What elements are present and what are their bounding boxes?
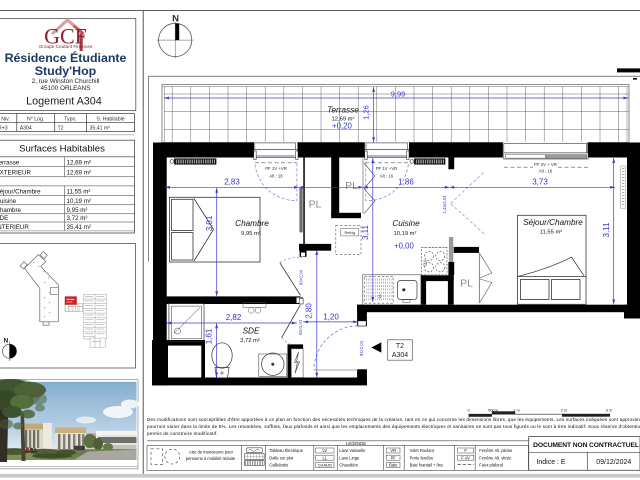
svg-text:personne à mobilité réduite: personne à mobilité réduite (186, 456, 236, 461)
svg-text:Fenêtre Alt. pleine: Fenêtre Alt. pleine (479, 448, 513, 453)
svg-text:Terrasse: Terrasse (327, 105, 359, 114)
svg-text:Groupe Coutant Finances: Groupe Coutant Finances (39, 44, 93, 49)
svg-text:PL: PL (309, 199, 322, 211)
svg-text:PF 1V +VR: PF 1V +VR (265, 166, 287, 171)
svg-text:+0,20: +0,20 (332, 122, 352, 131)
svg-text:Fenêtre Alt. vitrée: Fenêtre Alt. vitrée (479, 455, 512, 460)
svg-text:Baie fvantail + fixe: Baie fvantail + fixe (410, 463, 444, 468)
svg-text:Alt : 16: Alt : 16 (539, 169, 553, 174)
svg-text:2 m: 2 m (561, 408, 568, 413)
svg-text:PF 1V +VR: PF 1V +VR (376, 166, 398, 171)
svg-text:Chambre: Chambre (235, 219, 269, 228)
svg-text:45100 ORLEANS: 45100 ORLEANS (40, 85, 90, 92)
svg-text:Niv.: Niv. (1, 117, 10, 123)
svg-text:3,11: 3,11 (361, 224, 370, 240)
svg-text:Caillebotis: Caillebotis (269, 463, 288, 468)
svg-text:LL: LL (377, 293, 382, 298)
svg-text:Résidence Étudiante: Résidence Étudiante (5, 50, 127, 65)
svg-text:Typo.: Typo. (64, 117, 77, 123)
svg-text:1,61: 1,61 (204, 328, 213, 344)
svg-text:pourront varier dans la limite: pourront varier dans la limite de 5%. Le… (147, 424, 640, 429)
svg-text:EXTERIEUR: EXTERIEUR (0, 170, 31, 177)
svg-text:2,83: 2,83 (224, 178, 240, 187)
svg-text:1,26: 1,26 (361, 105, 370, 119)
svg-text:Séjour/Chambre: Séjour/Chambre (0, 188, 41, 195)
svg-text:permis de construire modificat: permis de construire modificatif. (147, 431, 218, 436)
svg-text:Faux plafond: Faux plafond (479, 463, 503, 468)
svg-text:12,69 m²: 12,69 m² (67, 170, 91, 177)
svg-text:Dalle sur plot: Dalle sur plot (269, 455, 294, 460)
svg-text:Terrasse: Terrasse (0, 160, 20, 167)
svg-text:Chaudière: Chaudière (339, 463, 359, 468)
svg-text:Chambre: Chambre (0, 207, 22, 214)
svg-text:3,73: 3,73 (532, 178, 548, 187)
svg-text:LEGENDE: LEGENDE (346, 441, 366, 446)
svg-text:PL: PL (460, 278, 473, 290)
svg-text:9,95 m²: 9,95 m² (67, 207, 88, 214)
svg-text:1,43x2,04: 1,43x2,04 (442, 195, 447, 214)
svg-text:2,80: 2,80 (305, 303, 314, 319)
svg-text:DOCUMENT NON CONTRACTUEL: DOCUMENT NON CONTRACTUEL (533, 442, 639, 449)
svg-text:63×2,04: 63×2,04 (298, 319, 303, 335)
svg-text:09/12/2024: 09/12/2024 (596, 459, 631, 466)
svg-text:Cuisine: Cuisine (0, 198, 17, 205)
svg-text:INTERIEUR: INTERIEUR (0, 224, 29, 231)
svg-text:12,69 m²: 12,69 m² (67, 160, 91, 167)
svg-text:PL: PL (345, 180, 358, 192)
svg-text:2,82: 2,82 (226, 313, 242, 322)
svg-text:3 m: 3 m (606, 408, 613, 413)
svg-text:A304: A304 (20, 126, 32, 132)
svg-text:3,72 m²: 3,72 m² (240, 338, 260, 344)
svg-text:LL: LL (323, 455, 328, 460)
svg-text:Study'Hop: Study'Hop (35, 64, 97, 78)
svg-text:Surfaces Habitables: Surfaces Habitables (19, 144, 105, 155)
svg-text:N: N (172, 13, 179, 24)
svg-text:N° Log.: N° Log. (27, 117, 44, 123)
svg-text:Alt : 16: Alt : 16 (380, 174, 394, 179)
svg-text:Lave Linge: Lave Linge (339, 455, 360, 460)
svg-text:CUI: CUI (423, 259, 428, 266)
svg-text:F AV: F AV (461, 455, 470, 460)
svg-text:1,20: 1,20 (323, 313, 339, 322)
svg-text:S. Habitable: S. Habitable (96, 117, 124, 123)
svg-text:PF: PF (391, 455, 397, 460)
svg-text:Refrig: Refrig (345, 230, 355, 235)
svg-text:Indice : E: Indice : E (536, 459, 566, 466)
svg-text:35,41 m²: 35,41 m² (90, 126, 111, 132)
svg-text:9,99: 9,99 (391, 89, 405, 98)
svg-text:11,55 m²: 11,55 m² (540, 230, 563, 236)
svg-text:Lave Vaisselle: Lave Vaisselle (339, 448, 366, 453)
svg-text:R+3: R+3 (0, 126, 8, 132)
svg-text:CHAUD: CHAUD (318, 463, 332, 468)
svg-text:Séjour/Chambre: Séjour/Chambre (523, 218, 583, 227)
svg-text:93×2,04: 93×2,04 (359, 340, 364, 356)
svg-text:Logement A304: Logement A304 (26, 96, 102, 108)
svg-text:Volet Roulant: Volet Roulant (410, 448, 435, 453)
svg-text:Baie: Baie (389, 463, 398, 468)
svg-text:10,19 m²: 10,19 m² (394, 231, 417, 237)
svg-text:2, rue Winston Churchill: 2, rue Winston Churchill (32, 78, 100, 85)
svg-text:PF 2V + VR: PF 2V + VR (534, 162, 557, 167)
svg-text:Alt : 16: Alt : 16 (269, 174, 283, 179)
svg-text:A304: A304 (392, 352, 408, 359)
svg-text:SDE: SDE (243, 327, 260, 336)
svg-text:3,11: 3,11 (602, 222, 611, 238)
svg-text:Aire de manoeuvre pour: Aire de manoeuvre pour (189, 450, 234, 455)
svg-text:3,72 m²: 3,72 m² (67, 215, 88, 222)
svg-text:Porte fenêtre: Porte fenêtre (410, 455, 434, 460)
svg-text:10,19 m²: 10,19 m² (67, 198, 91, 205)
svg-text:9,95 m²: 9,95 m² (241, 231, 261, 237)
svg-text:35,41 m²: 35,41 m² (67, 224, 91, 231)
svg-text:+0,00: +0,00 (394, 241, 414, 250)
svg-text:VR: VR (390, 448, 396, 453)
svg-text:SDE: SDE (0, 215, 8, 222)
svg-text:1,86: 1,86 (398, 178, 414, 187)
svg-text:Tableau Électrique: Tableau Électrique (269, 448, 303, 453)
svg-text:11,55 m²: 11,55 m² (67, 188, 91, 195)
svg-text:N: N (3, 338, 8, 345)
svg-text:T2: T2 (58, 126, 64, 132)
svg-text:83×2,04: 83×2,04 (298, 269, 303, 285)
svg-text:LV: LV (322, 448, 327, 453)
svg-text:Cuisine: Cuisine (392, 219, 420, 228)
svg-text:3,01: 3,01 (205, 215, 214, 231)
svg-text:T2: T2 (396, 343, 404, 350)
svg-text:Des modifications sont suscept: Des modifications sont susceptibles d'êt… (147, 417, 640, 422)
